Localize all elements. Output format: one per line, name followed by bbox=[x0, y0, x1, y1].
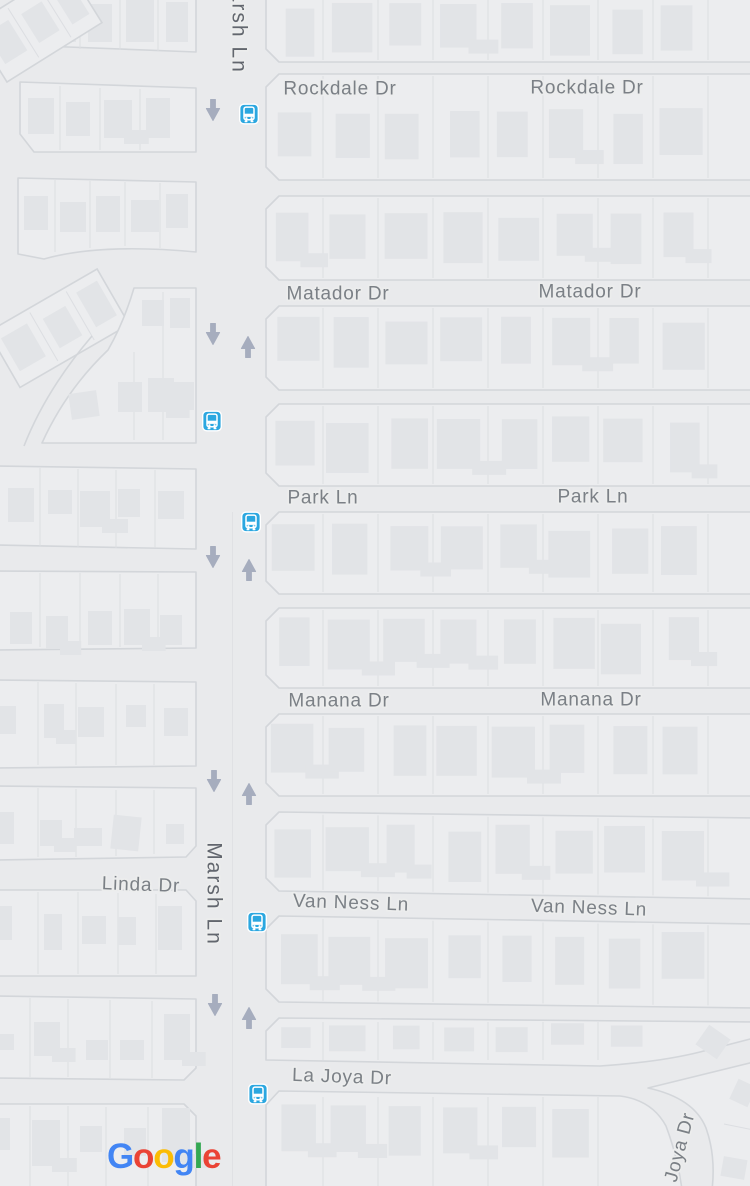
google-logo-letter: G bbox=[107, 1139, 133, 1174]
bus-stop-icon[interactable] bbox=[240, 104, 259, 124]
oneway-arrow-down-icon bbox=[208, 995, 221, 1016]
bus-stop-icon[interactable] bbox=[242, 512, 261, 532]
street-label-major: Marsh Ln bbox=[203, 842, 226, 946]
bus-stop-icon[interactable] bbox=[249, 1084, 268, 1104]
oneway-arrow-down-icon bbox=[206, 547, 219, 568]
street-label: Rockdale Dr bbox=[283, 79, 396, 100]
google-logo-letter: l bbox=[194, 1139, 203, 1174]
street-label: Manana Dr bbox=[288, 691, 389, 712]
map-svg[interactable]: Marsh LnMarsh LnRockdale DrRockdale DrMa… bbox=[0, 0, 750, 1186]
street-label: Matador Dr bbox=[538, 282, 641, 303]
street-label: Park Ln bbox=[557, 487, 628, 508]
bus-stop-icon[interactable] bbox=[248, 912, 267, 932]
google-logo-letter: e bbox=[202, 1139, 220, 1174]
google-logo-letter: g bbox=[173, 1139, 193, 1174]
street-label: Van Ness Ln bbox=[293, 891, 410, 916]
oneway-arrow-up-icon bbox=[242, 784, 255, 805]
oneway-arrow-down-icon bbox=[206, 100, 219, 121]
oneway-arrow-down-icon bbox=[207, 771, 220, 792]
oneway-arrow-up-icon bbox=[242, 560, 255, 581]
google-logo[interactable]: Google bbox=[107, 1139, 220, 1174]
city-blocks bbox=[0, 0, 750, 1186]
street-label: Van Ness Ln bbox=[531, 896, 648, 921]
bus-stop-icon[interactable] bbox=[203, 411, 222, 431]
google-logo-letter: o bbox=[153, 1139, 173, 1174]
map-canvas[interactable]: Marsh LnMarsh LnRockdale DrRockdale DrMa… bbox=[0, 0, 750, 1186]
oneway-arrow-up-icon bbox=[242, 1008, 255, 1029]
oneway-arrow-down-icon bbox=[206, 324, 219, 345]
google-logo-letter: o bbox=[133, 1139, 153, 1174]
street-label: Park Ln bbox=[287, 488, 358, 509]
map-icons bbox=[203, 100, 268, 1104]
street-label: Rockdale Dr bbox=[530, 78, 643, 99]
street-label: La Joya Dr bbox=[292, 1065, 393, 1089]
street-label-major: Marsh Ln bbox=[228, 0, 251, 74]
street-label: Linda Dr bbox=[102, 873, 181, 897]
street-label: Matador Dr bbox=[286, 284, 389, 305]
oneway-arrow-up-icon bbox=[241, 337, 254, 358]
street-label: Manana Dr bbox=[540, 690, 641, 711]
